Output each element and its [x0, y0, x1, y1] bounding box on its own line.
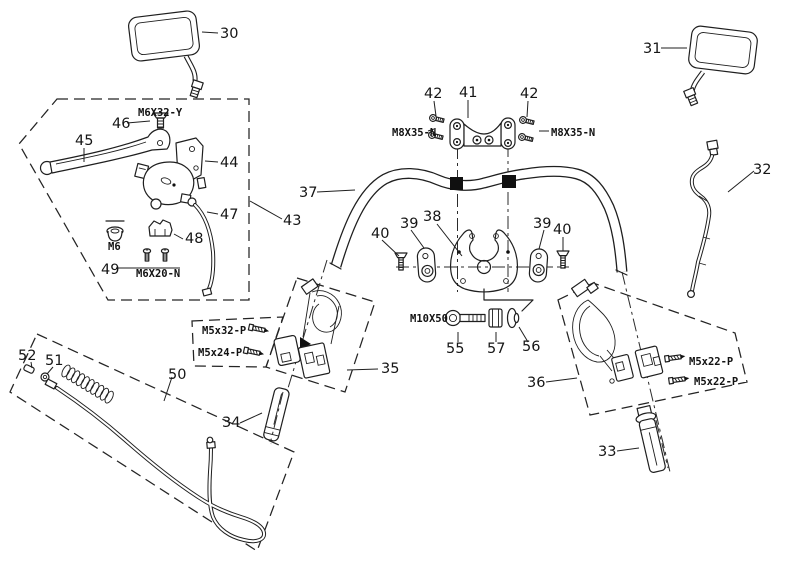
part-number-36: 36 — [527, 375, 545, 391]
spec-label-m8x35-n-right: M8X35-N — [551, 127, 595, 139]
part-number-41: 41 — [459, 85, 477, 101]
part-number-50: 50 — [168, 367, 186, 383]
screw-40-right — [557, 251, 569, 268]
part-number-labels: 30 31 32 33 34 35 36 37 38 39 39 40 40 4… — [18, 26, 771, 460]
screws-49-m6x20 — [143, 249, 168, 261]
left-switch-assembly — [274, 279, 342, 378]
part-number-44: 44 — [220, 155, 238, 171]
m10-bolt-row — [446, 289, 534, 328]
part-number-55: 55 — [446, 341, 464, 357]
part-number-57: 57 — [487, 341, 505, 357]
screw-m5x24 — [243, 347, 264, 357]
cable-clamp-48 — [149, 220, 172, 236]
bar-clamp-39-left — [417, 247, 436, 282]
part-number-42-right: 42 — [520, 86, 538, 102]
part-number-52: 52 — [18, 348, 36, 364]
spec-label-m5x24-p: M5x24-P — [198, 347, 242, 359]
screw-m5x22-top — [665, 353, 686, 362]
cover-plate-38 — [451, 230, 518, 292]
part-number-49: 49 — [101, 262, 119, 278]
parts-diagram-page: 30 31 32 33 34 35 36 37 38 39 39 40 40 4… — [0, 0, 788, 576]
right-mirror — [684, 25, 759, 106]
brake-cable-47 — [195, 205, 213, 296]
spec-label-m5x32-p: M5x32-P — [202, 325, 246, 337]
dashed-boundary-boxes — [10, 99, 747, 551]
part-number-37: 37 — [299, 185, 317, 201]
part-number-35: 35 — [381, 361, 399, 377]
spec-label-m5x22-p-top: M5x22-P — [689, 356, 733, 368]
part-number-32: 32 — [753, 162, 771, 178]
bar-clamp-39-right — [529, 248, 548, 282]
spec-label-m5x22-p-bottom: M5x22-P — [694, 376, 738, 388]
clamp-band-right — [502, 175, 516, 188]
part-number-48: 48 — [185, 231, 203, 247]
part-number-34: 34 — [222, 415, 240, 431]
part-number-33: 33 — [598, 444, 616, 460]
spec-label-m8x35-n-left: M8X35-N — [392, 127, 436, 139]
handlebar-exploded-diagram: 30 31 32 33 34 35 36 37 38 39 39 40 40 4… — [0, 0, 788, 576]
part-number-39-left: 39 — [400, 216, 418, 232]
left-grip-34 — [263, 387, 290, 442]
screw-m5x22-bottom — [669, 375, 690, 384]
clamp-band-left — [450, 177, 463, 190]
throttle-cable-32 — [688, 140, 720, 297]
part-number-46: 46 — [112, 116, 130, 132]
spec-label-m10x50: M10X50 — [410, 313, 448, 325]
part-number-51: 51 — [45, 353, 63, 369]
cable-kit-50 — [23, 364, 264, 541]
part-number-43: 43 — [283, 213, 301, 229]
leader-lines — [31, 32, 754, 451]
part-number-38: 38 — [423, 209, 441, 225]
part-number-40-right: 40 — [553, 222, 571, 238]
screw-m5x32 — [248, 324, 269, 334]
spec-label-m6x32-y: M6X32-Y — [138, 107, 183, 119]
right-switch-assembly — [572, 276, 663, 383]
spec-label-m6: M6 — [108, 241, 121, 253]
part-number-31: 31 — [643, 41, 661, 57]
right-mirror-stud — [684, 88, 699, 107]
throttle-grip-33 — [634, 405, 668, 474]
part-number-56: 56 — [522, 339, 540, 355]
part-number-30: 30 — [220, 26, 238, 42]
center-lines — [271, 120, 670, 472]
left-mirror — [128, 10, 204, 98]
part-number-45: 45 — [75, 133, 93, 149]
part-number-47: 47 — [220, 207, 238, 223]
part-number-40-left: 40 — [371, 226, 389, 242]
nut-m6 — [106, 221, 124, 241]
part-number-42-left: 42 — [424, 86, 442, 102]
cable-spring — [60, 364, 115, 405]
handlebar-clamp-41 — [450, 118, 515, 149]
spec-label-m6x20-n: M6X20-N — [136, 268, 180, 280]
part-number-39-right: 39 — [533, 216, 551, 232]
left-mirror-stud — [189, 80, 203, 98]
